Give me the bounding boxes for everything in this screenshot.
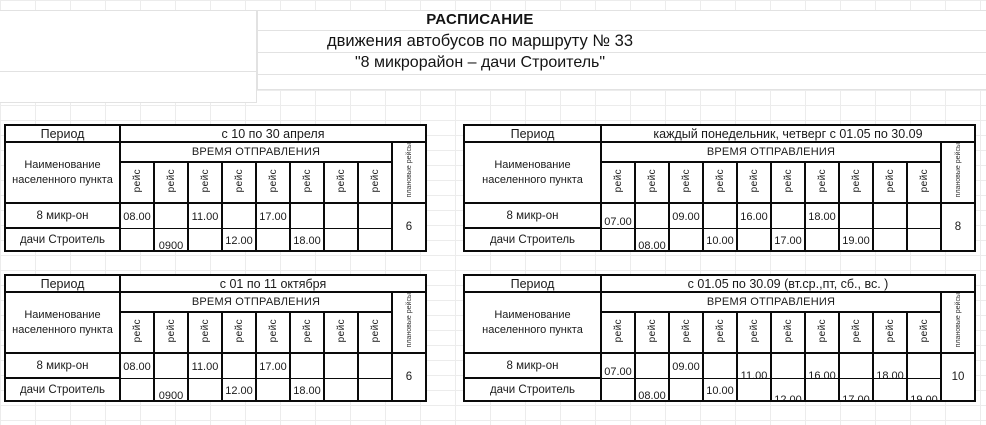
- planned-header-label: плановые рейсы: [406, 293, 413, 347]
- settlement-header-cell[interactable]: Наименование населенного пункта: [464, 292, 601, 353]
- time-value: 18.00: [876, 370, 904, 378]
- time-cell[interactable]: [256, 378, 290, 401]
- planned-header-cell[interactable]: плановые рейсы: [392, 292, 426, 353]
- trip-header-label: рейс: [681, 319, 692, 342]
- trip-header-cell[interactable]: рейс: [703, 162, 737, 203]
- trip-header-cell[interactable]: рейс: [358, 312, 392, 353]
- schedule-table-october: Периодс 01 по 11 октябряНаименование нас…: [4, 274, 427, 402]
- period-value-cell[interactable]: каждый понедельник, четверг с 01.05 по 3…: [601, 125, 975, 142]
- stop-name-cell[interactable]: дачи Строитель: [464, 378, 601, 401]
- trip-header-label: рейс: [681, 169, 692, 192]
- trip-header-label: рейс: [715, 169, 726, 192]
- settlement-header-cell[interactable]: Наименование населенного пункта: [5, 292, 120, 353]
- time-cell[interactable]: [873, 203, 907, 228]
- time-cell[interactable]: 11.00: [188, 353, 222, 378]
- time-cell[interactable]: 09.00: [669, 353, 703, 378]
- title-row-band: [258, 75, 986, 90]
- time-cell[interactable]: [290, 353, 324, 378]
- planned-header-label: плановые рейсы: [406, 143, 413, 197]
- time-cell[interactable]: 08.00: [120, 203, 154, 228]
- time-cell[interactable]: [188, 228, 222, 251]
- period-label-cell[interactable]: Период: [464, 125, 601, 142]
- time-value: 0900: [159, 390, 183, 402]
- time-cell[interactable]: [290, 203, 324, 228]
- trip-header-cell[interactable]: рейс: [601, 312, 635, 353]
- time-cell[interactable]: [256, 228, 290, 251]
- time-cell[interactable]: 11.00: [737, 353, 771, 378]
- trip-header-label: рейс: [783, 169, 794, 192]
- trip-header-cell[interactable]: рейс: [805, 162, 839, 203]
- time-cell[interactable]: [154, 353, 188, 378]
- time-row: дачи Строитель08.0010.0012.0017.0019.00: [464, 378, 975, 401]
- time-cell[interactable]: [907, 228, 941, 251]
- trip-header-cell[interactable]: рейс: [737, 312, 771, 353]
- time-cell[interactable]: 12.00: [222, 228, 256, 251]
- planned-header-label: плановые рейсы: [955, 143, 962, 197]
- settlement-header-cell[interactable]: Наименование населенного пункта: [5, 142, 120, 203]
- time-row: дачи Строитель090012.0018.00: [5, 228, 426, 251]
- time-row: 8 микр-он07.0009.0016.0018.008: [464, 203, 975, 228]
- trip-header-cell[interactable]: рейс: [120, 312, 154, 353]
- trip-header-cell[interactable]: рейс: [805, 312, 839, 353]
- time-cell[interactable]: [669, 228, 703, 251]
- time-cell[interactable]: [703, 203, 737, 228]
- trip-header-label: рейс: [268, 319, 279, 342]
- trip-header-label: рейс: [613, 319, 624, 342]
- time-value: 10.00: [706, 235, 734, 247]
- trip-header-label: рейс: [749, 169, 760, 192]
- trip-header-cell[interactable]: рейс: [839, 312, 873, 353]
- time-cell[interactable]: 18.00: [805, 203, 839, 228]
- trip-header-cell[interactable]: рейс: [737, 162, 771, 203]
- trip-header-cell[interactable]: рейс: [290, 312, 324, 353]
- settlement-header-cell[interactable]: Наименование населенного пункта: [464, 142, 601, 203]
- trip-header-label: рейс: [370, 169, 381, 192]
- trip-header-cell[interactable]: рейс: [771, 162, 805, 203]
- period-label-cell[interactable]: Период: [5, 125, 120, 142]
- time-value: 17.00: [774, 235, 802, 247]
- time-cell[interactable]: [907, 203, 941, 228]
- trip-header-cell[interactable]: рейс: [669, 312, 703, 353]
- time-value: 09.00: [672, 361, 700, 373]
- time-cell[interactable]: [873, 378, 907, 401]
- trip-header-label: рейс: [851, 169, 862, 192]
- time-cell[interactable]: [737, 378, 771, 401]
- time-cell[interactable]: [120, 378, 154, 401]
- schedule-table: Периодс 01 по 11 октябряНаименование нас…: [4, 274, 427, 402]
- time-value: 12.00: [225, 235, 253, 247]
- time-value: 17.00: [259, 361, 287, 373]
- trip-header-cell[interactable]: рейс: [907, 162, 941, 203]
- time-value: 08.00: [123, 211, 151, 223]
- trip-header-label: рейс: [885, 319, 896, 342]
- time-cell[interactable]: 0900: [154, 228, 188, 251]
- time-cell[interactable]: 17.00: [256, 353, 290, 378]
- time-value: 10.00: [706, 385, 734, 397]
- time-cell[interactable]: [839, 353, 873, 378]
- trip-header-cell[interactable]: рейс: [222, 162, 256, 203]
- time-cell[interactable]: 10.00: [703, 228, 737, 251]
- trip-header-cell[interactable]: рейс: [635, 162, 669, 203]
- schedule-title: РАСПИСАНИЕ: [257, 10, 703, 30]
- time-value: 19.00: [910, 394, 938, 402]
- period-value-cell[interactable]: с 10 по 30 апреля: [120, 125, 426, 142]
- trip-header-label: рейс: [336, 169, 347, 192]
- trip-header-cell[interactable]: рейс: [873, 162, 907, 203]
- trip-header-label: рейс: [132, 319, 143, 342]
- time-row: дачи Строитель08.0010.0017.0019.00: [464, 228, 975, 251]
- stop-name-cell[interactable]: дачи Строитель: [5, 378, 120, 401]
- header-row: Наименование населенного пунктаВРЕМЯ ОТП…: [464, 292, 975, 312]
- time-cell[interactable]: [771, 353, 805, 378]
- time-cell[interactable]: [601, 378, 635, 401]
- time-value: 08.00: [638, 390, 666, 402]
- trip-header-label: рейс: [302, 169, 313, 192]
- time-cell[interactable]: 10.00: [703, 378, 737, 401]
- time-cell[interactable]: 19.00: [907, 378, 941, 401]
- trip-header-cell[interactable]: рейс: [324, 312, 358, 353]
- planned-header-label: плановые рейсы: [955, 293, 962, 347]
- spreadsheet-canvas: РАСПИСАНИЕ движения автобусов по маршрут…: [0, 0, 986, 425]
- stop-name-cell[interactable]: 8 микр-он: [5, 353, 120, 378]
- time-cell[interactable]: 12.00: [222, 378, 256, 401]
- time-value: 09.00: [672, 211, 700, 223]
- trip-header-label: рейс: [200, 169, 211, 192]
- time-row: 8 микр-он07.0009.0011.0016.0018.0010: [464, 353, 975, 378]
- time-cell[interactable]: [358, 378, 392, 401]
- time-cell[interactable]: [635, 353, 669, 378]
- route-subtitle: движения автобусов по маршруту № 33: [257, 30, 703, 52]
- time-cell[interactable]: [601, 228, 635, 251]
- trip-header-cell[interactable]: рейс: [324, 162, 358, 203]
- trip-header-cell[interactable]: рейс: [290, 162, 324, 203]
- time-value: 08.00: [123, 361, 151, 373]
- planned-value-cell[interactable]: 6: [392, 203, 426, 251]
- time-cell[interactable]: 07.00: [601, 353, 635, 378]
- trip-header-label: рейс: [302, 319, 313, 342]
- time-value: 08.00: [638, 240, 666, 252]
- time-cell[interactable]: [324, 228, 358, 251]
- trip-header-label: рейс: [613, 169, 624, 192]
- trip-header-cell[interactable]: рейс: [256, 312, 290, 353]
- trip-header-cell[interactable]: рейс: [188, 312, 222, 353]
- trip-header-cell[interactable]: рейс: [358, 162, 392, 203]
- time-cell[interactable]: [188, 378, 222, 401]
- trip-header-label: рейс: [234, 319, 245, 342]
- trip-header-cell[interactable]: рейс: [907, 312, 941, 353]
- schedule-table: Периодкаждый понедельник, четверг с 01.0…: [463, 124, 976, 252]
- time-cell[interactable]: 18.00: [290, 228, 324, 251]
- schedule-table: Периодс 01.05 по 30.09 (вт.ср.,пт, сб., …: [463, 274, 976, 402]
- empty-merged-cell: [0, 10, 257, 72]
- trip-header-label: рейс: [851, 319, 862, 342]
- trip-header-cell[interactable]: рейс: [669, 162, 703, 203]
- trip-header-cell[interactable]: рейс: [222, 312, 256, 353]
- planned-value-cell[interactable]: 10: [941, 353, 975, 401]
- trip-header-label: рейс: [715, 319, 726, 342]
- time-cell[interactable]: [635, 203, 669, 228]
- trip-header-label: рейс: [885, 169, 896, 192]
- time-cell[interactable]: 18.00: [290, 378, 324, 401]
- time-cell[interactable]: 17.00: [256, 203, 290, 228]
- schedule-table-april: Периодс 10 по 30 апреляНаименование насе…: [4, 124, 427, 252]
- time-value: 18.00: [808, 211, 836, 223]
- time-cell[interactable]: [120, 228, 154, 251]
- time-cell[interactable]: [737, 228, 771, 251]
- header-row: Наименование населенного пунктаВРЕМЯ ОТП…: [5, 292, 426, 312]
- time-cell[interactable]: 08.00: [635, 228, 669, 251]
- time-value: 17.00: [842, 394, 870, 402]
- time-cell[interactable]: 11.00: [188, 203, 222, 228]
- time-cell[interactable]: 19.00: [839, 228, 873, 251]
- time-cell[interactable]: [154, 203, 188, 228]
- stop-name-cell[interactable]: дачи Строитель: [5, 228, 120, 251]
- trip-header-cell[interactable]: рейс: [873, 312, 907, 353]
- time-cell[interactable]: [771, 203, 805, 228]
- trip-header-cell[interactable]: рейс: [256, 162, 290, 203]
- time-row: дачи Строитель090012.0018.00: [5, 378, 426, 401]
- time-cell[interactable]: 09.00: [669, 203, 703, 228]
- time-value: 19.00: [842, 235, 870, 247]
- stop-name-cell[interactable]: 8 микр-он: [464, 353, 601, 378]
- stop-name-cell[interactable]: дачи Строитель: [464, 228, 601, 251]
- time-value: 18.00: [293, 235, 321, 247]
- time-cell[interactable]: 08.00: [120, 353, 154, 378]
- planned-header-cell[interactable]: плановые рейсы: [941, 142, 975, 203]
- trip-header-label: рейс: [234, 169, 245, 192]
- trip-header-cell[interactable]: рейс: [635, 312, 669, 353]
- time-cell[interactable]: [324, 203, 358, 228]
- time-value: 12.00: [774, 394, 802, 402]
- trip-header-cell[interactable]: рейс: [188, 162, 222, 203]
- stop-name-cell[interactable]: 8 микр-он: [464, 203, 601, 228]
- period-row: Периодкаждый понедельник, четверг с 01.0…: [464, 125, 975, 142]
- period-row: Периодс 01 по 11 октября: [5, 275, 426, 292]
- departure-header-cell[interactable]: ВРЕМЯ ОТПРАВЛЕНИЯ: [601, 142, 941, 162]
- time-cell[interactable]: 18.00: [873, 353, 907, 378]
- trip-header-label: рейс: [200, 319, 211, 342]
- period-row: Периодс 01.05 по 30.09 (вт.ср.,пт, сб., …: [464, 275, 975, 292]
- trip-header-cell[interactable]: рейс: [120, 162, 154, 203]
- time-cell[interactable]: 16.00: [737, 203, 771, 228]
- time-cell[interactable]: 08.00: [635, 378, 669, 401]
- header-row: Наименование населенного пунктаВРЕМЯ ОТП…: [5, 142, 426, 162]
- time-cell[interactable]: [358, 228, 392, 251]
- trip-header-cell[interactable]: рейс: [703, 312, 737, 353]
- departure-header-cell[interactable]: ВРЕМЯ ОТПРАВЛЕНИЯ: [120, 142, 392, 162]
- time-value: 07.00: [604, 216, 632, 228]
- schedule-table: Периодс 10 по 30 апреляНаименование насе…: [4, 124, 427, 252]
- route-name: "8 микрорайон – дачи Строитель": [257, 52, 703, 74]
- trip-header-label: рейс: [336, 319, 347, 342]
- time-cell[interactable]: [358, 203, 392, 228]
- time-cell[interactable]: [669, 378, 703, 401]
- trip-header-label: рейс: [132, 169, 143, 192]
- trip-header-cell[interactable]: рейс: [771, 312, 805, 353]
- time-row: 8 микр-он08.0011.0017.006: [5, 353, 426, 378]
- trip-header-label: рейс: [919, 319, 930, 342]
- trip-header-cell[interactable]: рейс: [839, 162, 873, 203]
- time-cell[interactable]: [324, 353, 358, 378]
- time-cell[interactable]: 12.00: [771, 378, 805, 401]
- time-value: 0900: [159, 240, 183, 252]
- time-cell[interactable]: [805, 228, 839, 251]
- departure-header-cell[interactable]: ВРЕМЯ ОТПРАВЛЕНИЯ: [601, 292, 941, 312]
- time-value: 12.00: [225, 385, 253, 397]
- time-cell[interactable]: [805, 378, 839, 401]
- time-value: 18.00: [293, 385, 321, 397]
- time-cell[interactable]: [222, 353, 256, 378]
- trip-header-cell[interactable]: рейс: [154, 312, 188, 353]
- time-cell[interactable]: [222, 203, 256, 228]
- trip-header-label: рейс: [817, 319, 828, 342]
- time-value: 11.00: [741, 370, 768, 378]
- schedule-table-monday-thursday: Периодкаждый понедельник, четверг с 01.0…: [463, 124, 976, 252]
- trip-header-label: рейс: [268, 169, 279, 192]
- period-label-cell[interactable]: Период: [464, 275, 601, 292]
- time-row: 8 микр-он08.0011.0017.006: [5, 203, 426, 228]
- planned-header-cell[interactable]: плановые рейсы: [392, 142, 426, 203]
- time-value: 11.00: [192, 361, 219, 373]
- schedule-table-summer-weekdays: Периодс 01.05 по 30.09 (вт.ср.,пт, сб., …: [463, 274, 976, 402]
- period-value-cell[interactable]: с 01.05 по 30.09 (вт.ср.,пт, сб., вс. ): [601, 275, 975, 292]
- trip-header-label: рейс: [647, 169, 658, 192]
- planned-header-cell[interactable]: плановые рейсы: [941, 292, 975, 353]
- time-cell[interactable]: 16.00: [805, 353, 839, 378]
- departure-header-cell[interactable]: ВРЕМЯ ОТПРАВЛЕНИЯ: [120, 292, 392, 312]
- trip-header-label: рейс: [919, 169, 930, 192]
- trip-header-label: рейс: [647, 319, 658, 342]
- time-cell[interactable]: [358, 353, 392, 378]
- trip-header-cell[interactable]: рейс: [601, 162, 635, 203]
- trip-header-label: рейс: [370, 319, 381, 342]
- time-cell[interactable]: [839, 203, 873, 228]
- time-cell[interactable]: 0900: [154, 378, 188, 401]
- time-cell[interactable]: 07.00: [601, 203, 635, 228]
- period-value-cell[interactable]: с 01 по 11 октября: [120, 275, 426, 292]
- time-value: 07.00: [604, 366, 632, 378]
- time-value: 16.00: [808, 370, 836, 378]
- trip-header-label: рейс: [783, 319, 794, 342]
- time-cell[interactable]: [324, 378, 358, 401]
- trip-header-label: рейс: [817, 169, 828, 192]
- time-cell[interactable]: [907, 353, 941, 378]
- time-cell[interactable]: 17.00: [839, 378, 873, 401]
- empty-merged-cell: [0, 72, 257, 103]
- trip-header-label: рейс: [749, 319, 760, 342]
- stop-name-cell[interactable]: 8 микр-он: [5, 203, 120, 228]
- time-value: 17.00: [259, 211, 287, 223]
- time-cell[interactable]: 17.00: [771, 228, 805, 251]
- time-value: 11.00: [192, 211, 219, 223]
- time-cell[interactable]: [873, 228, 907, 251]
- period-label-cell[interactable]: Период: [5, 275, 120, 292]
- period-row: Периодс 10 по 30 апреля: [5, 125, 426, 142]
- time-cell[interactable]: [703, 353, 737, 378]
- planned-value-cell[interactable]: 8: [941, 203, 975, 251]
- trip-header-label: рейс: [166, 319, 177, 342]
- trip-header-cell[interactable]: рейс: [154, 162, 188, 203]
- header-row: Наименование населенного пунктаВРЕМЯ ОТП…: [464, 142, 975, 162]
- trip-header-label: рейс: [166, 169, 177, 192]
- time-value: 16.00: [740, 211, 768, 223]
- planned-value-cell[interactable]: 6: [392, 353, 426, 401]
